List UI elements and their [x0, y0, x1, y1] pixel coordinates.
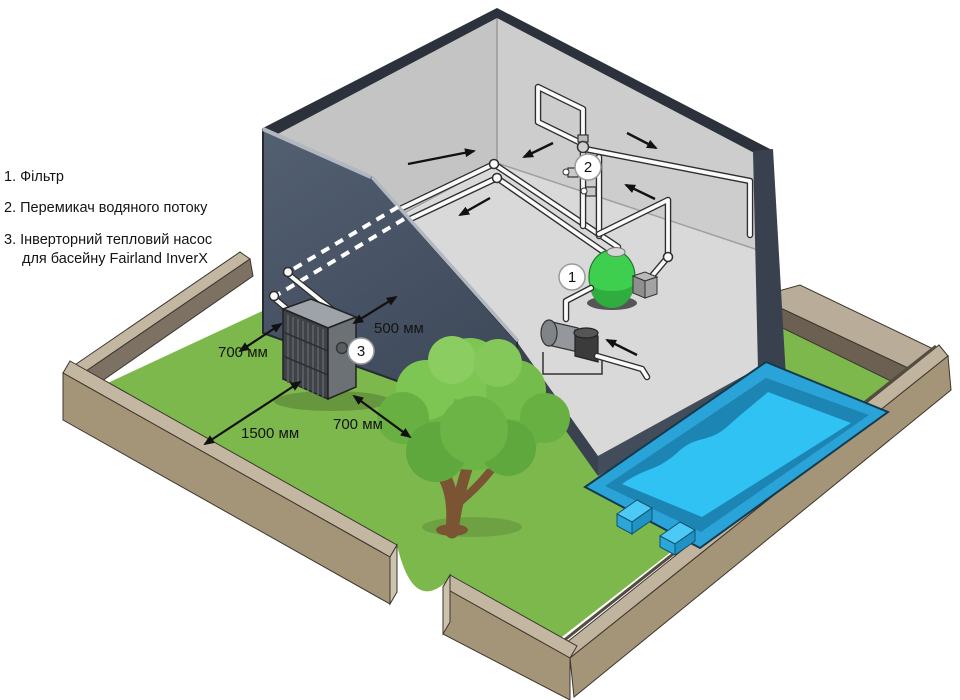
legend: 1. Фільтр 2. Перемикач водяного потоку 3…: [4, 169, 212, 267]
heat-pump-fan: [337, 343, 348, 354]
badge-filter-number: 1: [568, 269, 576, 286]
legend-item-heat-pump-line1: 3. Інверторний тепловий насос: [4, 232, 212, 248]
legend-item-filter: 1. Фільтр: [4, 169, 64, 185]
dim-label-700-left: 700 мм: [218, 344, 268, 361]
diagram-canvas: 500 мм 700 мм 1500 мм 700 мм 1 2 3 1. Фі…: [0, 0, 960, 700]
badge-flow-switch-number: 2: [584, 159, 592, 176]
multiport-valve: [633, 272, 657, 298]
legend-item-flow-switch: 2. Перемикач водяного потоку: [4, 200, 208, 216]
legend-item-heat-pump-line2: для басейну Fairland InverX: [22, 251, 208, 267]
installation-diagram: 500 мм 700 мм 1500 мм 700 мм 1 2 3 1. Фі…: [0, 0, 960, 700]
dim-label-500: 500 мм: [374, 320, 424, 337]
building-right-edge: [753, 149, 786, 378]
dim-label-1500: 1500 мм: [241, 425, 299, 442]
badge-heat-pump-number: 3: [357, 343, 365, 360]
dim-label-700-right: 700 мм: [333, 416, 383, 433]
tree-shadow: [422, 517, 522, 537]
